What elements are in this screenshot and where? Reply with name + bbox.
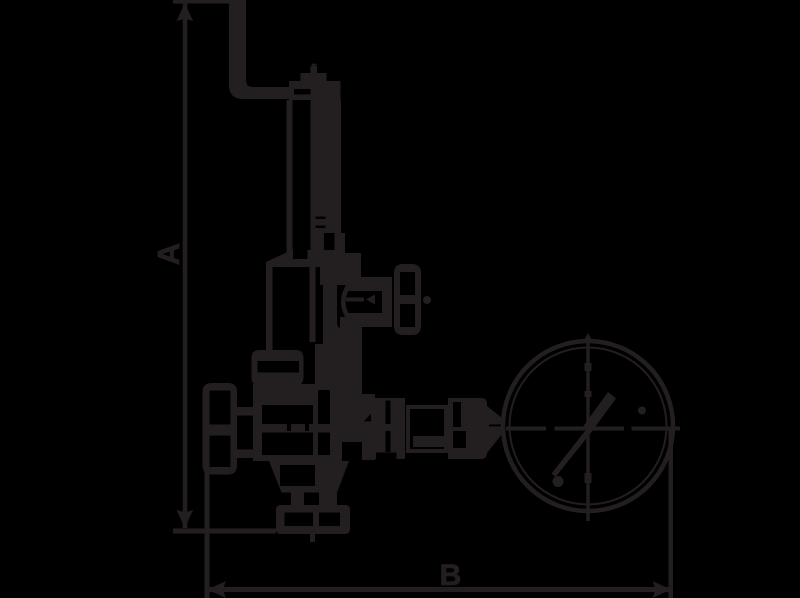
svg-text:B: B bbox=[440, 559, 462, 592]
svg-text:A: A bbox=[151, 243, 186, 265]
